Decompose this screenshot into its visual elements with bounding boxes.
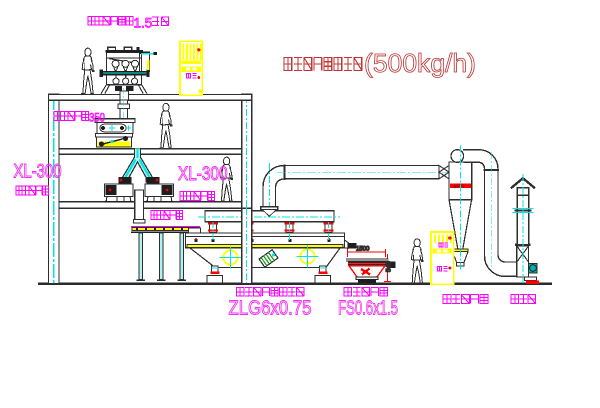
svg-text:1500: 1500 [356,247,370,253]
svg-text:XL-300: XL-300 [178,163,228,185]
svg-text:(500kg/h): (500kg/h) [364,48,476,78]
svg-text:350: 350 [89,111,105,125]
svg-text:540: 540 [386,261,393,272]
svg-text:XL-300: XL-300 [14,161,62,183]
svg-text:φ600: φ600 [454,184,465,189]
svg-text:ZLG6x0.75: ZLG6x0.75 [229,297,312,320]
svg-text:1.5: 1.5 [134,16,153,31]
svg-text:FS0.6x1.5: FS0.6x1.5 [338,297,398,320]
